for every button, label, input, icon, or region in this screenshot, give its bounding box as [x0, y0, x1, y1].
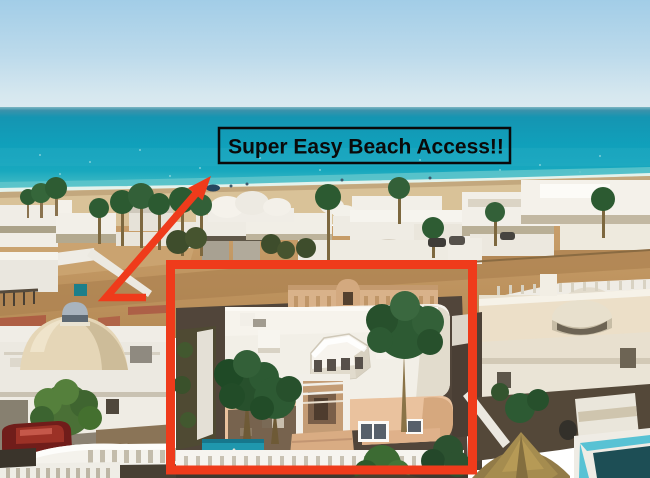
svg-text:Super Easy Beach Access!!: Super Easy Beach Access!!: [228, 136, 504, 159]
